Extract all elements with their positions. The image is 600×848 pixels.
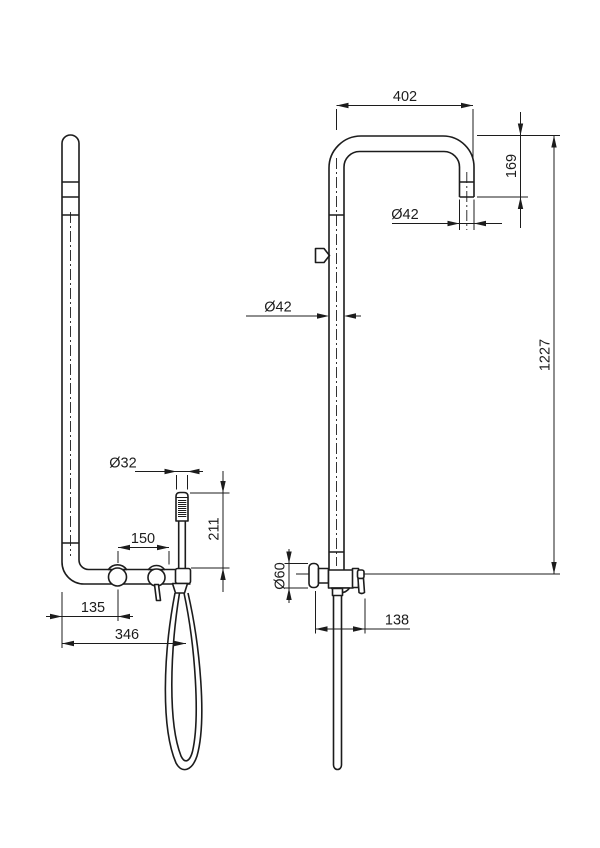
arrow-left-icon bbox=[62, 641, 74, 646]
arrow-right-icon bbox=[461, 103, 473, 108]
side-valve1-knob bbox=[109, 568, 127, 586]
handshower-holder bbox=[176, 569, 191, 584]
arrow-down-icon bbox=[220, 481, 225, 493]
dim-valve-body-diameter: Ø60 bbox=[273, 549, 309, 603]
side-hose-loop-outer bbox=[165, 593, 201, 770]
dim-riser-diameter-label: Ø42 bbox=[264, 300, 291, 316]
arrow-right-icon bbox=[448, 221, 460, 226]
front-arm-joint-lines bbox=[329, 182, 474, 552]
arrow-up-icon bbox=[518, 197, 523, 209]
arrow-right-icon bbox=[157, 545, 169, 550]
arrow-down-icon bbox=[286, 552, 291, 564]
wall-flange bbox=[309, 564, 319, 588]
dim-wall-to-hose-label: 346 bbox=[115, 627, 139, 643]
arrow-left-icon bbox=[188, 469, 200, 474]
side-hose-nut bbox=[173, 584, 188, 594]
dim-total-height-label: 1227 bbox=[538, 339, 554, 371]
arrow-down-icon bbox=[518, 124, 523, 136]
arrow-left-icon bbox=[316, 626, 328, 631]
dim-valve-body-diameter-label: Ø60 bbox=[273, 562, 289, 589]
arrow-left-icon bbox=[118, 545, 130, 550]
dim-arm-drop-label: 169 bbox=[504, 154, 520, 178]
handshower-spray-face bbox=[178, 501, 186, 517]
dim-arm-reach: 402 bbox=[337, 89, 474, 161]
side-view bbox=[62, 135, 202, 770]
lever-cap bbox=[358, 570, 365, 579]
front-hose-nut bbox=[333, 589, 343, 596]
lever-arm bbox=[358, 579, 365, 594]
arrow-right-icon bbox=[174, 641, 186, 646]
dim-valve-spacing-label: 150 bbox=[131, 531, 155, 547]
arrow-right-icon bbox=[165, 469, 177, 474]
side-valve2-lever bbox=[155, 585, 161, 601]
dim-wall-to-first-valve-label: 135 bbox=[81, 600, 105, 616]
front-riser-and-arm-outline bbox=[329, 136, 474, 570]
drawing-sheet: 402 169 Ø42 Ø42 1227 bbox=[0, 0, 600, 848]
dim-wall-to-hose: 346 bbox=[62, 627, 186, 646]
arrow-right-icon bbox=[50, 614, 62, 619]
riser-clip bbox=[316, 249, 330, 263]
arrow-left-icon bbox=[474, 221, 486, 226]
dim-handshower-length-label: 211 bbox=[207, 517, 223, 540]
dim-handshower-diameter: Ø32 bbox=[109, 456, 203, 490]
arrow-left-icon bbox=[344, 313, 356, 318]
dim-outlet-diameter: Ø42 bbox=[391, 200, 502, 231]
dim-wall-to-lever: 138 bbox=[316, 591, 411, 634]
dim-wall-to-lever-label: 138 bbox=[385, 613, 409, 629]
dim-outlet-diameter-label: Ø42 bbox=[391, 207, 418, 223]
dim-arm-reach-label: 402 bbox=[393, 89, 417, 105]
dim-handshower-diameter-label: Ø32 bbox=[109, 456, 136, 472]
dim-arm-drop: 169 bbox=[477, 112, 560, 228]
arrow-up-icon bbox=[220, 568, 225, 580]
arrow-up-icon bbox=[551, 136, 556, 148]
arrow-left-icon bbox=[118, 614, 130, 619]
arrow-down-icon bbox=[551, 562, 556, 574]
front-hose bbox=[334, 596, 342, 770]
flange-neck bbox=[319, 569, 329, 584]
valve-body bbox=[329, 570, 354, 588]
arrow-right-icon bbox=[353, 626, 365, 631]
dim-valve-spacing: 150 bbox=[118, 531, 169, 565]
side-valve2-knob bbox=[148, 569, 165, 586]
arrow-left-icon bbox=[337, 103, 349, 108]
handshower-handle bbox=[179, 521, 186, 573]
dim-handshower-length: 211 bbox=[190, 471, 230, 592]
front-view bbox=[296, 136, 560, 770]
arrow-right-icon bbox=[317, 313, 329, 318]
dim-total-height: 1227 bbox=[538, 136, 557, 575]
side-pipe-outline bbox=[62, 135, 191, 584]
technical-drawing: 402 169 Ø42 Ø42 1227 bbox=[0, 0, 600, 848]
dimension-annotations: 402 169 Ø42 Ø42 1227 bbox=[46, 89, 560, 648]
